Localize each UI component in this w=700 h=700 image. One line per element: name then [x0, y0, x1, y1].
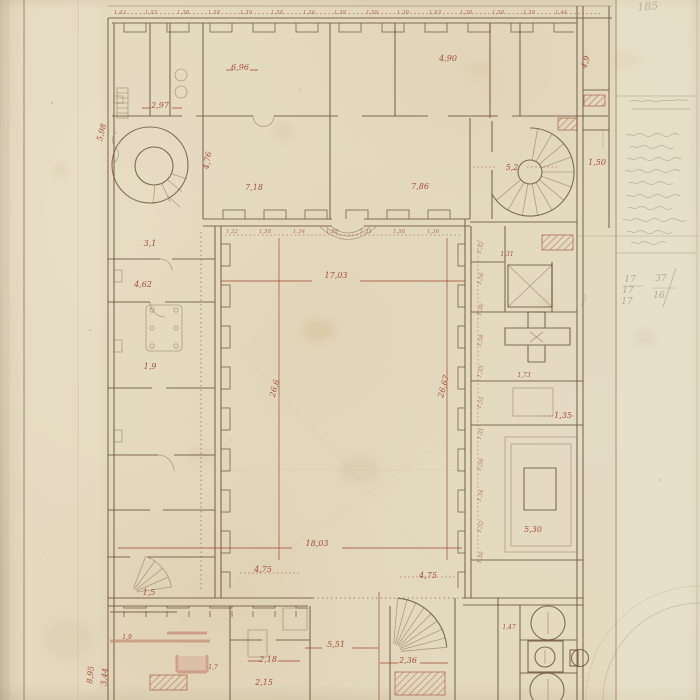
margin-figure: 17 [622, 286, 634, 296]
dimension-label: 2,97 [150, 101, 170, 110]
dimension-label: 3,44 [99, 668, 110, 687]
dimension-label: 7,18 [245, 183, 263, 192]
margin-figure: 16 [653, 291, 665, 301]
dimension-label: 1,38 [334, 10, 347, 16]
dimension-label: 1,58 [208, 10, 221, 16]
floor-plan-drawing: 2,976,964,905,987,187,864,765,21,504,917… [0, 0, 700, 700]
courtyard-north-pilasters [215, 207, 465, 219]
dimension-label: 1,31 [500, 251, 513, 258]
dimension-label: 6,96 [231, 63, 249, 72]
dimension-label: 1,50 [588, 158, 606, 167]
margin-figure: 17 [624, 275, 636, 285]
dimension-label: 1,58 [492, 10, 505, 16]
dimension-label: 4,62 [133, 280, 152, 289]
dimension-label: 7,86 [411, 182, 429, 191]
aged-paper-sheet: 2,976,964,905,987,187,864,765,21,504,917… [0, 0, 700, 700]
dimension-label: 8,95 [85, 666, 96, 685]
dimension-label: 1,93 [429, 10, 442, 16]
dimension-label: 1,58 [259, 229, 272, 235]
corner-inscription: 185 [637, 0, 659, 14]
dimension-label: 1,73 [517, 372, 531, 379]
dimension-label: 1,32 [226, 229, 239, 235]
dimension-label: 1,36 [397, 10, 410, 16]
dimension-label: 1,7 [208, 664, 218, 671]
dimension-label: 1,31 [360, 229, 372, 235]
dimension-label: 1,38 [177, 10, 190, 16]
plan-area-tint [100, 0, 617, 700]
right-margin-strip [617, 0, 700, 700]
dimension-label: 1,93 [145, 10, 158, 16]
hatched-stair-area [558, 118, 577, 130]
dimension-label: 17,03 [325, 271, 348, 280]
dimension-label: 1,58 [393, 229, 406, 235]
dimension-label: 1,58 [326, 229, 339, 235]
dimension-label: 1,44 [555, 10, 568, 16]
top-facade-window-piers [114, 23, 574, 35]
hatched-stair-run [150, 675, 187, 690]
dimension-label: 1,38 [460, 10, 473, 16]
margin-figure: 37 [655, 274, 667, 284]
margin-figure: 17 [621, 297, 633, 307]
hatched-stair-run [395, 672, 445, 695]
dimension-label: 2,36 [398, 656, 417, 665]
dimension-label: 1,39 [240, 10, 253, 16]
dimension-label: 5,30 [524, 525, 542, 534]
dimension-label: 1,43 [114, 10, 127, 16]
pink-filled-room [179, 656, 205, 671]
dimension-label: 3,1 [144, 239, 157, 248]
dimension-label: 1,9 [122, 634, 132, 641]
dimension-label: 5,2 [506, 163, 519, 172]
courtyard-east-pilasters [455, 236, 465, 588]
dimension-label: 1,34 [293, 229, 306, 235]
paper-tone-overlays [100, 0, 700, 700]
dimension-label: 1,47 [502, 624, 516, 631]
dimension-label: 1,36 [427, 229, 440, 235]
dimension-label: 1,5 [143, 588, 156, 597]
dimension-label: 1,35 [554, 411, 572, 420]
dimension-label: 1,36 [303, 10, 316, 16]
dimension-label: 4,75 [418, 571, 437, 580]
dimension-label: 1,58 [271, 10, 284, 16]
dimension-label: 4,75 [253, 565, 272, 574]
dimension-label: 1,9 [144, 362, 157, 371]
hatched-stair-area [584, 95, 605, 106]
dimension-label: 1,39 [523, 10, 536, 16]
dimension-label: 18,03 [306, 539, 329, 548]
courtyard-west-pilasters [221, 236, 231, 588]
dimension-label: 4,90 [438, 54, 457, 63]
dimension-label: 2,18 [258, 655, 277, 664]
dimension-label: 1,58 [366, 10, 379, 16]
dimension-label: 5,51 [327, 640, 345, 649]
dimension-label: 2,15 [254, 678, 273, 687]
hatched-stair-area [542, 235, 573, 250]
